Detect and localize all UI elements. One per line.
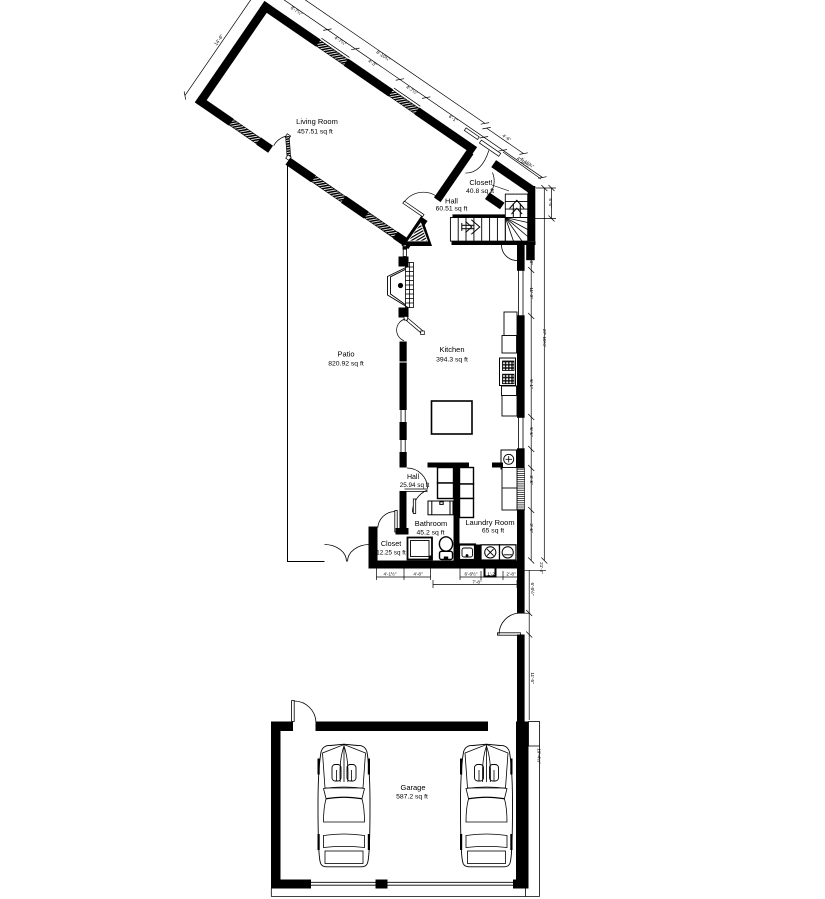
svg-text:Garage: Garage <box>400 783 425 792</box>
svg-text:1'-2": 1'-2" <box>487 572 497 577</box>
svg-text:Kitchen: Kitchen <box>439 345 464 354</box>
svg-text:5'-5": 5'-5" <box>529 427 534 437</box>
svg-text:7'-8": 7'-8" <box>472 580 482 585</box>
svg-text:3'-8": 3'-8" <box>529 475 534 485</box>
svg-text:820.92 sq ft: 820.92 sq ft <box>328 361 364 368</box>
svg-text:587.2 sq ft: 587.2 sq ft <box>396 794 428 801</box>
svg-text:65 sq ft: 65 sq ft <box>482 528 504 535</box>
svg-text:6'-5": 6'-5" <box>548 198 553 208</box>
svg-text:19'-4¼": 19'-4¼" <box>537 748 542 764</box>
svg-text:60.51 sq ft: 60.51 sq ft <box>436 206 468 213</box>
svg-text:5'-1": 5'-1" <box>529 379 534 389</box>
svg-text:27'-10¾": 27'-10¾" <box>542 329 547 347</box>
svg-text:457.51 sq ft: 457.51 sq ft <box>297 129 333 136</box>
svg-text:4'-1½": 4'-1½" <box>384 571 397 577</box>
svg-text:6'-8½": 6'-8½" <box>530 583 536 596</box>
svg-text:Laundry Room: Laundry Room <box>465 518 514 527</box>
svg-text:6'-6½": 6'-6½" <box>465 571 478 577</box>
svg-text:11'-5": 11'-5" <box>530 672 535 684</box>
svg-text:Patio: Patio <box>337 350 354 359</box>
svg-text:Closet: Closet <box>381 539 401 548</box>
svg-text:25.94 sq ft: 25.94 sq ft <box>400 482 430 489</box>
svg-text:394.3 sq ft: 394.3 sq ft <box>436 357 468 364</box>
svg-text:2'-8": 2'-8" <box>506 572 516 577</box>
svg-text:Hall: Hall <box>445 197 458 206</box>
svg-text:Bathroom: Bathroom <box>415 519 448 528</box>
svg-text:2'-6": 2'-6" <box>529 523 534 533</box>
svg-text:12.25 sq ft: 12.25 sq ft <box>376 550 406 557</box>
svg-text:Hall: Hall <box>407 474 420 481</box>
svg-text:Closet!: Closet! <box>469 178 492 187</box>
svg-text:1'-10": 1'-10" <box>529 253 534 265</box>
svg-text:Living Room: Living Room <box>296 117 338 126</box>
svg-text:4'-8": 4'-8" <box>413 572 423 577</box>
svg-text:45.2 sq ft: 45.2 sq ft <box>417 530 445 537</box>
svg-text:21'-2": 21'-2" <box>539 562 544 574</box>
svg-text:11'-9": 11'-9" <box>529 287 534 299</box>
